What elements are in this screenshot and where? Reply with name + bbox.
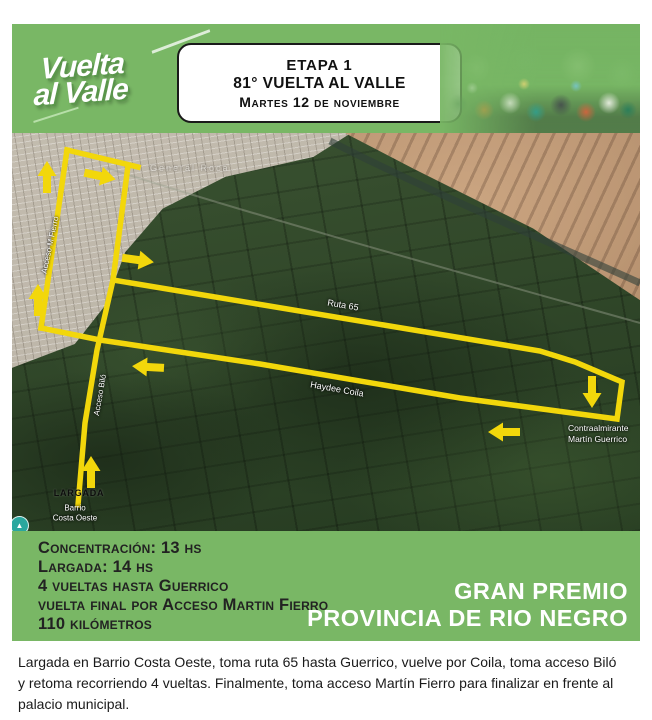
info-line-vuelta-final: vuelta final por Acceso Martin Fierro xyxy=(38,596,328,615)
grand-prix-title: GRAN PREMIO PROVINCIA DE RIO NEGRO xyxy=(307,578,628,631)
town-label-line1: Contraalmirante xyxy=(568,423,640,434)
route-arrow-down xyxy=(583,376,602,408)
info-band: Concentración: 13 hs Largada: 14 hs 4 vu… xyxy=(12,531,640,641)
race-poster: Vuelta al Valle ETAPA 1 81° VUELTA AL VA… xyxy=(0,0,652,720)
route-arrow-up xyxy=(38,161,57,193)
neighborhood-line2: Costa Oeste xyxy=(53,514,97,524)
info-line-concentracion: Concentración: 13 hs xyxy=(38,539,328,558)
route-arrow-right xyxy=(82,163,117,188)
info-line-kilometros: 110 kilómetros xyxy=(38,615,328,634)
schedule-info: Concentración: 13 hs Largada: 14 hs 4 vu… xyxy=(38,539,328,634)
route-lines xyxy=(41,150,622,505)
neighborhood-label: Barrio Costa Oeste xyxy=(53,504,97,525)
route-arrow-left xyxy=(132,357,165,378)
grand-prix-line1: GRAN PREMIO xyxy=(307,578,628,604)
city-watermark-label: General Roca xyxy=(150,163,230,173)
info-line-vueltas: 4 vueltas hasta Guerrico xyxy=(38,577,328,596)
town-label-guerrico: Contraalmirante Martín Guerrico xyxy=(568,423,640,446)
stage-info-box: ETAPA 1 81° VUELTA AL VALLE Martes 12 de… xyxy=(177,43,462,123)
stage-number: ETAPA 1 xyxy=(286,57,352,74)
grand-prix-line2: PROVINCIA DE RIO NEGRO xyxy=(307,605,628,631)
map-control-icon: ▲ xyxy=(12,516,29,531)
info-line-largada: Largada: 14 hs xyxy=(38,558,328,577)
stage-date: Martes 12 de noviembre xyxy=(239,94,399,110)
river xyxy=(330,141,640,283)
race-edition-title: 81° VUELTA AL VALLE xyxy=(233,75,406,93)
logo-line2: al Valle xyxy=(33,73,180,109)
route-description: Largada en Barrio Costa Oeste, toma ruta… xyxy=(18,652,624,715)
header-band: Vuelta al Valle ETAPA 1 81° VUELTA AL VA… xyxy=(12,24,640,133)
route-arrow-left xyxy=(488,423,520,442)
vuelta-al-valle-logo: Vuelta al Valle xyxy=(39,47,180,109)
neighborhood-line1: Barrio xyxy=(53,504,97,514)
start-point-label: LARGADA xyxy=(54,488,105,498)
route-arrow-right xyxy=(121,248,155,271)
route-direction-arrows xyxy=(29,161,602,488)
route-overlay xyxy=(12,133,640,531)
peloton-photo xyxy=(440,24,640,133)
town-label-line2: Martín Guerrico xyxy=(568,434,640,445)
route-map: General Roca Acceso M Fierro Acceso Biló… xyxy=(12,133,640,531)
